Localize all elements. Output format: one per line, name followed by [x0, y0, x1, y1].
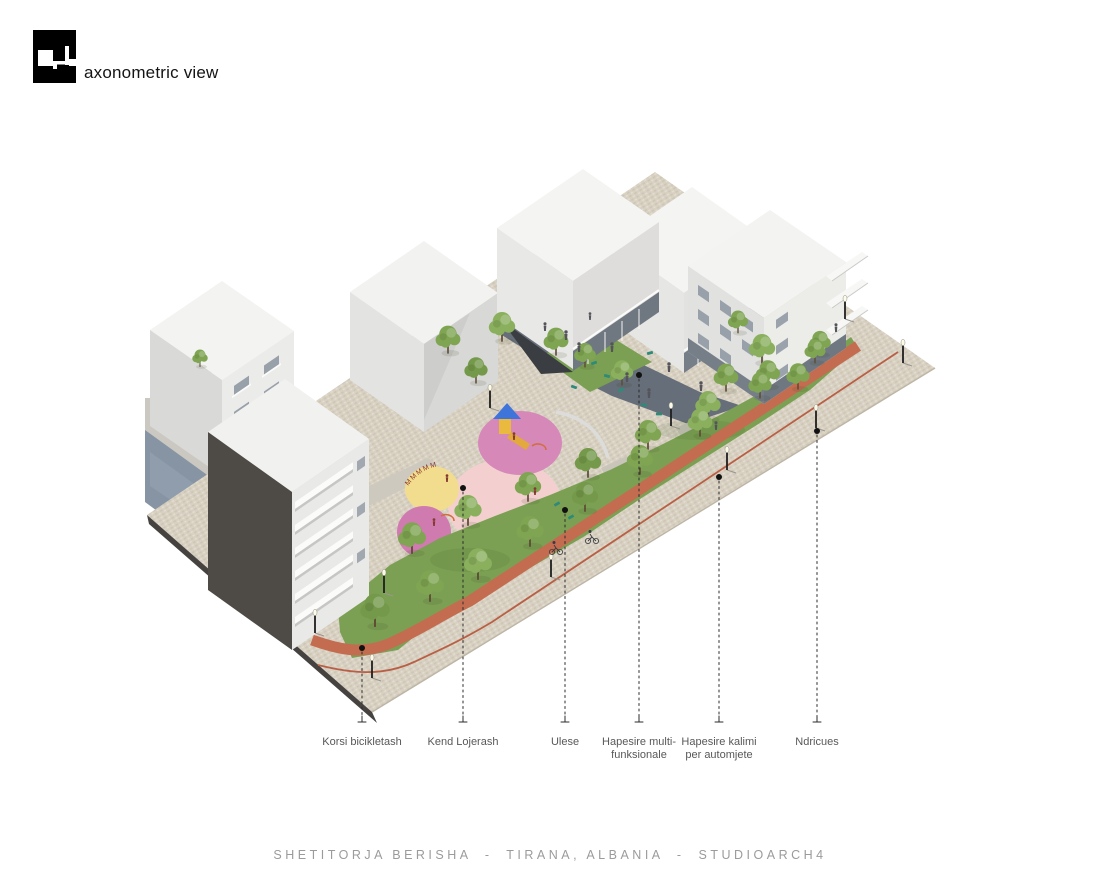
leader-hapesire-kalimi: Hapesire kalimi per automjete [681, 474, 756, 761]
leader-label: funksionale [611, 749, 667, 761]
leader-label: Hapesire multi- [602, 736, 676, 748]
logo-block: axonometric view [33, 30, 219, 83]
project-title: SHETITORJA BERISHA - TIRANA, ALBANIA - S… [0, 848, 1100, 862]
leader-label: Hapesire kalimi [681, 736, 756, 748]
studio-logo-icon [33, 30, 76, 83]
circle-yellow [405, 466, 459, 512]
leader-label: Kend Lojerash [428, 736, 499, 748]
leader-label: Ulese [551, 736, 579, 748]
leader-label: Korsi bicikletash [322, 736, 401, 748]
leader-label: per automjete [685, 749, 752, 761]
view-title: axonometric view [84, 64, 219, 83]
leader-ndricues: Ndricues [795, 428, 839, 748]
sheet: MMMMM [0, 0, 1100, 889]
axonometric-scene: MMMMM [0, 0, 1100, 889]
leader-label: Ndricues [795, 736, 839, 748]
